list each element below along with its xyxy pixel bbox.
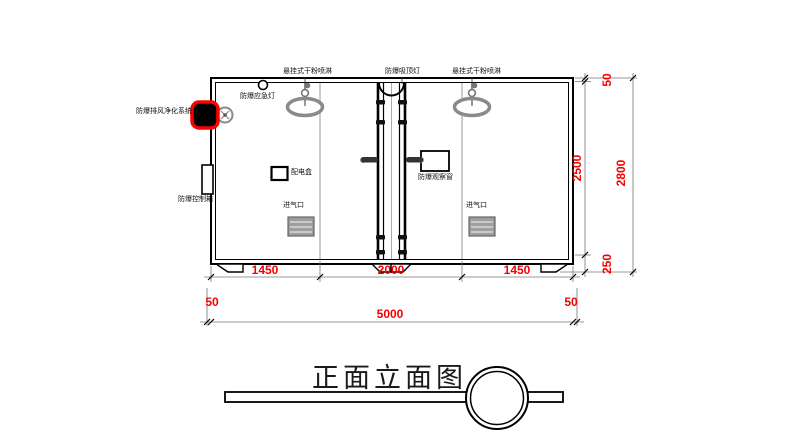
label-control-box: 防爆控制箱 <box>178 196 213 204</box>
dim-bay-center: 2000 <box>378 264 405 276</box>
observation-window-icon <box>421 151 449 171</box>
air-inlet-left-icon <box>288 217 314 236</box>
dim-bay-right: 1450 <box>504 264 531 276</box>
dim-inner-height: 2500 <box>571 155 583 182</box>
dim-total-width: 5000 <box>377 308 404 320</box>
power-box-icon <box>272 167 288 180</box>
dim-bay-left: 1450 <box>252 264 279 276</box>
label-spray-left: 悬挂式干粉喷淋 <box>283 68 332 76</box>
dim-offset-left: 50 <box>205 296 218 308</box>
label-ceiling-lamp: 防爆吸顶灯 <box>385 68 420 76</box>
label-air-inlet-right: 进气口 <box>466 202 487 210</box>
elevation-drawing: 悬挂式干粉喷淋 防爆吸顶灯 悬挂式干粉喷淋 防爆应急灯 防爆排风净化系统 防爆控… <box>0 0 800 445</box>
dim-total-height: 2800 <box>615 160 627 187</box>
label-observation-window: 防爆观察窗 <box>418 174 453 182</box>
label-spray-right: 悬挂式干粉喷淋 <box>452 68 501 76</box>
drawing-title: 正面立面图 <box>312 356 467 395</box>
label-power-box: 配电盒 <box>291 169 312 177</box>
purification-unit-highlighted <box>192 102 218 128</box>
label-air-inlet-left: 进气口 <box>283 202 304 210</box>
dim-base: 250 <box>601 254 613 274</box>
control-box-icon <box>202 165 213 194</box>
label-emergency-lamp: 防爆应急灯 <box>240 93 275 101</box>
dim-roof: 50 <box>601 73 613 86</box>
emergency-lamp-icon <box>259 81 268 90</box>
dim-offset-right: 50 <box>564 296 577 308</box>
air-inlet-right-icon <box>469 217 495 236</box>
label-purification-system: 防爆排风净化系统 <box>136 108 192 116</box>
